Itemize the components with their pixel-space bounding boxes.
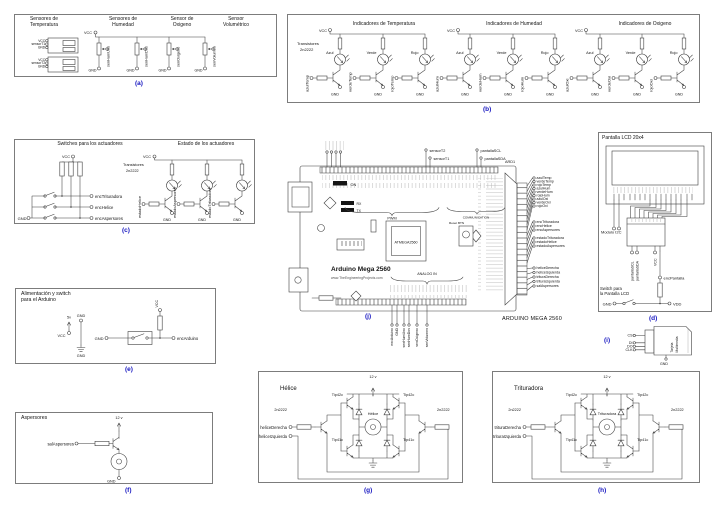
- tag-c: (c): [122, 227, 130, 234]
- c-title-estado: Estado de los actuadores: [146, 141, 266, 147]
- j-top-sda: pantallaSDA: [485, 157, 507, 161]
- b-title-humedad: Indicadores de Humedad: [452, 21, 576, 27]
- tag-h: (h): [598, 487, 606, 494]
- tag-b: (b): [483, 106, 491, 113]
- c-title-switches: Switches para los actuadores: [30, 141, 150, 147]
- schematic-page: { "tags": {"a":"(a)","b":"(b)","c":"(c)"…: [0, 0, 721, 509]
- j-rp: rojoOxi: [537, 204, 548, 208]
- j-rp: estadoTrituradora: [537, 236, 565, 240]
- tag-j: (j): [365, 313, 371, 320]
- j-rp: encHelice: [537, 224, 552, 228]
- tag-i: (i): [604, 337, 610, 344]
- j-bot-senOxigeno: senOxigeno: [415, 328, 419, 347]
- j-ref-label: ARD1: [505, 160, 515, 164]
- panel-d-lcd: [598, 132, 712, 312]
- tag-g: (g): [364, 487, 372, 494]
- j-rp: salAspersores: [537, 284, 559, 288]
- i-card-label-2: Multimedia: [675, 336, 679, 352]
- j-board-url: www.TheEngineeringProjects.com: [331, 276, 426, 280]
- j-bot-senVolumen: senVolumen: [425, 328, 429, 347]
- j-bot-gnd: GND: [395, 328, 399, 336]
- j-rp: trituraDerecha: [537, 275, 559, 279]
- j-rx-label: RX: [357, 202, 363, 206]
- j-rp: heliceDerecha: [537, 266, 559, 270]
- g-title: Hélice: [280, 386, 325, 393]
- j-rp: estadoHelice: [537, 240, 557, 244]
- e-title: Alimentación y switch para el Arduino: [21, 291, 116, 303]
- j-chip-label: ATMEGA2560: [395, 241, 418, 245]
- j-rp: verdeOxi: [537, 201, 551, 205]
- j-rp: verdeTemp: [537, 180, 554, 184]
- i-pin-cs: CS: [628, 334, 634, 338]
- j-pwm-label: PWM: [387, 217, 396, 221]
- j-comm-label: COMMUNICATION: [463, 216, 490, 220]
- j-tx-label: TX: [357, 209, 362, 213]
- j-bot-senHumUno: senHumUno: [402, 328, 406, 348]
- a-title-oxigeno: Sensor de Oxigeno: [154, 16, 210, 28]
- j-bot-encArduino: encArduino: [390, 328, 394, 346]
- panel-b-indicadores: [287, 14, 700, 103]
- j-board-name: Arduino Mega 2560: [331, 266, 426, 274]
- tag-d: (d): [649, 315, 657, 322]
- j-rp: azulTemp: [537, 176, 552, 180]
- j-rp: heliceIzquierda: [537, 271, 561, 275]
- j-rp: verdeHum: [537, 190, 553, 194]
- i-pin-clk: CLK: [626, 348, 634, 352]
- j-rp: azulOxi: [537, 197, 549, 201]
- j-rp: estadoAspersores: [537, 244, 565, 248]
- j-rp: encAspersores: [537, 228, 561, 232]
- panel-c-switches: [14, 139, 255, 224]
- b-title-oxigeno: Indicadores de Oxigeno: [583, 21, 707, 27]
- j-rp: rojoTemp: [537, 183, 551, 187]
- i-pin-do: DO: [627, 344, 633, 348]
- j-top-sensorT1: sensorT1: [434, 157, 450, 161]
- i-pin-di: DI: [629, 341, 633, 345]
- d-title: Pantalla LCD 20x4: [602, 135, 692, 141]
- d-switch-note: Switch para la Pantalla LCD: [600, 286, 648, 296]
- i-gnd-label: GND: [660, 362, 668, 366]
- a-title-volumetrico: Sensor Volumétrico: [206, 16, 266, 28]
- a-title-humedad: Sensores de Humedad: [95, 16, 151, 28]
- a-title-temperatura: Sensores de Temperatura: [16, 16, 72, 28]
- j-rp: encTrituradora: [537, 220, 560, 224]
- panel-f-aspersores: [15, 412, 213, 484]
- tag-e: (e): [125, 366, 133, 373]
- h-title: Trituradora: [514, 386, 569, 393]
- j-top-sensorT2: sensorT2: [430, 149, 446, 153]
- j-on-label: ON: [351, 183, 357, 187]
- i-card-label-1: Tarjeta: [670, 342, 674, 352]
- j-top-scl: pantallaSCL: [481, 149, 502, 153]
- b-title-temperatura: Indicadores de Temperatura: [322, 21, 446, 27]
- j-bot-senHumDos: senHumDos: [407, 328, 411, 348]
- f-title: Aspersores: [21, 415, 81, 421]
- j-rp: rojoHum: [537, 194, 550, 198]
- panel-i-circuit: CS DI DO CLK Tarjeta Multimedia GND: [626, 327, 692, 367]
- j-caption: ARDUINO MEGA 2560: [502, 316, 617, 323]
- j-rp: azulHum: [537, 187, 551, 191]
- tag-f: (f): [125, 487, 132, 494]
- j-reset-label: Reset BTN: [449, 221, 464, 225]
- j-rp: trituraIzquierda: [537, 280, 560, 284]
- tag-a: (a): [135, 80, 143, 87]
